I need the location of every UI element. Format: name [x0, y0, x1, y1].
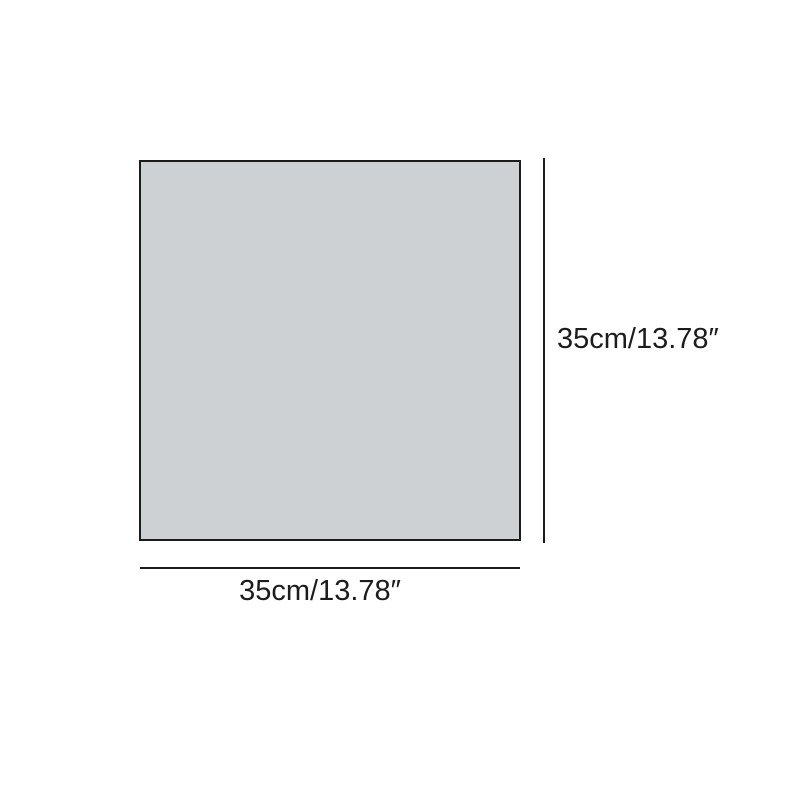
height-label: 35cm/13.78″: [557, 324, 719, 356]
width-dimension-line: [140, 567, 520, 569]
width-label: 35cm/13.78″: [130, 576, 510, 608]
product-square: [139, 160, 521, 541]
dimension-diagram: 35cm/13.78″ 35cm/13.78″: [0, 0, 800, 800]
height-dimension-line: [543, 158, 545, 543]
